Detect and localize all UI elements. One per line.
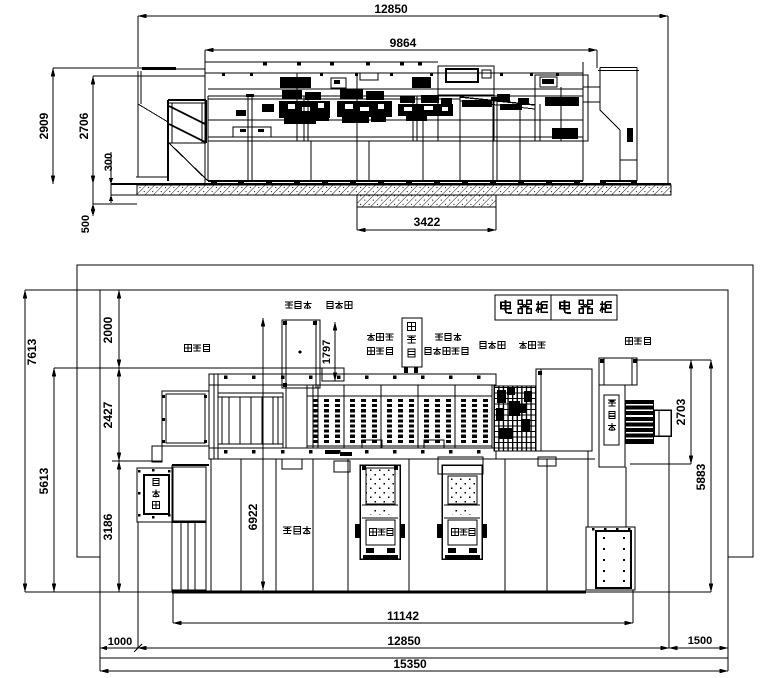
svg-text:2706: 2706 <box>77 112 91 139</box>
svg-text:1000: 1000 <box>108 636 132 648</box>
svg-text:500: 500 <box>80 215 92 233</box>
svg-text:2427: 2427 <box>101 401 115 428</box>
svg-text:15350: 15350 <box>393 657 427 671</box>
svg-text:9864: 9864 <box>390 36 417 50</box>
svg-text:3186: 3186 <box>101 513 115 540</box>
svg-text:5613: 5613 <box>37 467 51 494</box>
svg-text:7613: 7613 <box>25 338 39 365</box>
svg-text:1500: 1500 <box>688 635 712 647</box>
svg-text:12850: 12850 <box>387 634 421 648</box>
svg-text:6922: 6922 <box>246 503 260 530</box>
svg-text:1797: 1797 <box>321 340 333 364</box>
svg-text:11142: 11142 <box>387 609 419 623</box>
svg-text:3422: 3422 <box>414 215 441 229</box>
svg-text:2909: 2909 <box>37 112 51 139</box>
svg-text:300: 300 <box>103 153 115 171</box>
svg-text:2000: 2000 <box>101 316 115 343</box>
svg-text:2703: 2703 <box>674 398 688 425</box>
svg-text:5883: 5883 <box>694 463 708 490</box>
svg-text:12850: 12850 <box>374 2 408 16</box>
